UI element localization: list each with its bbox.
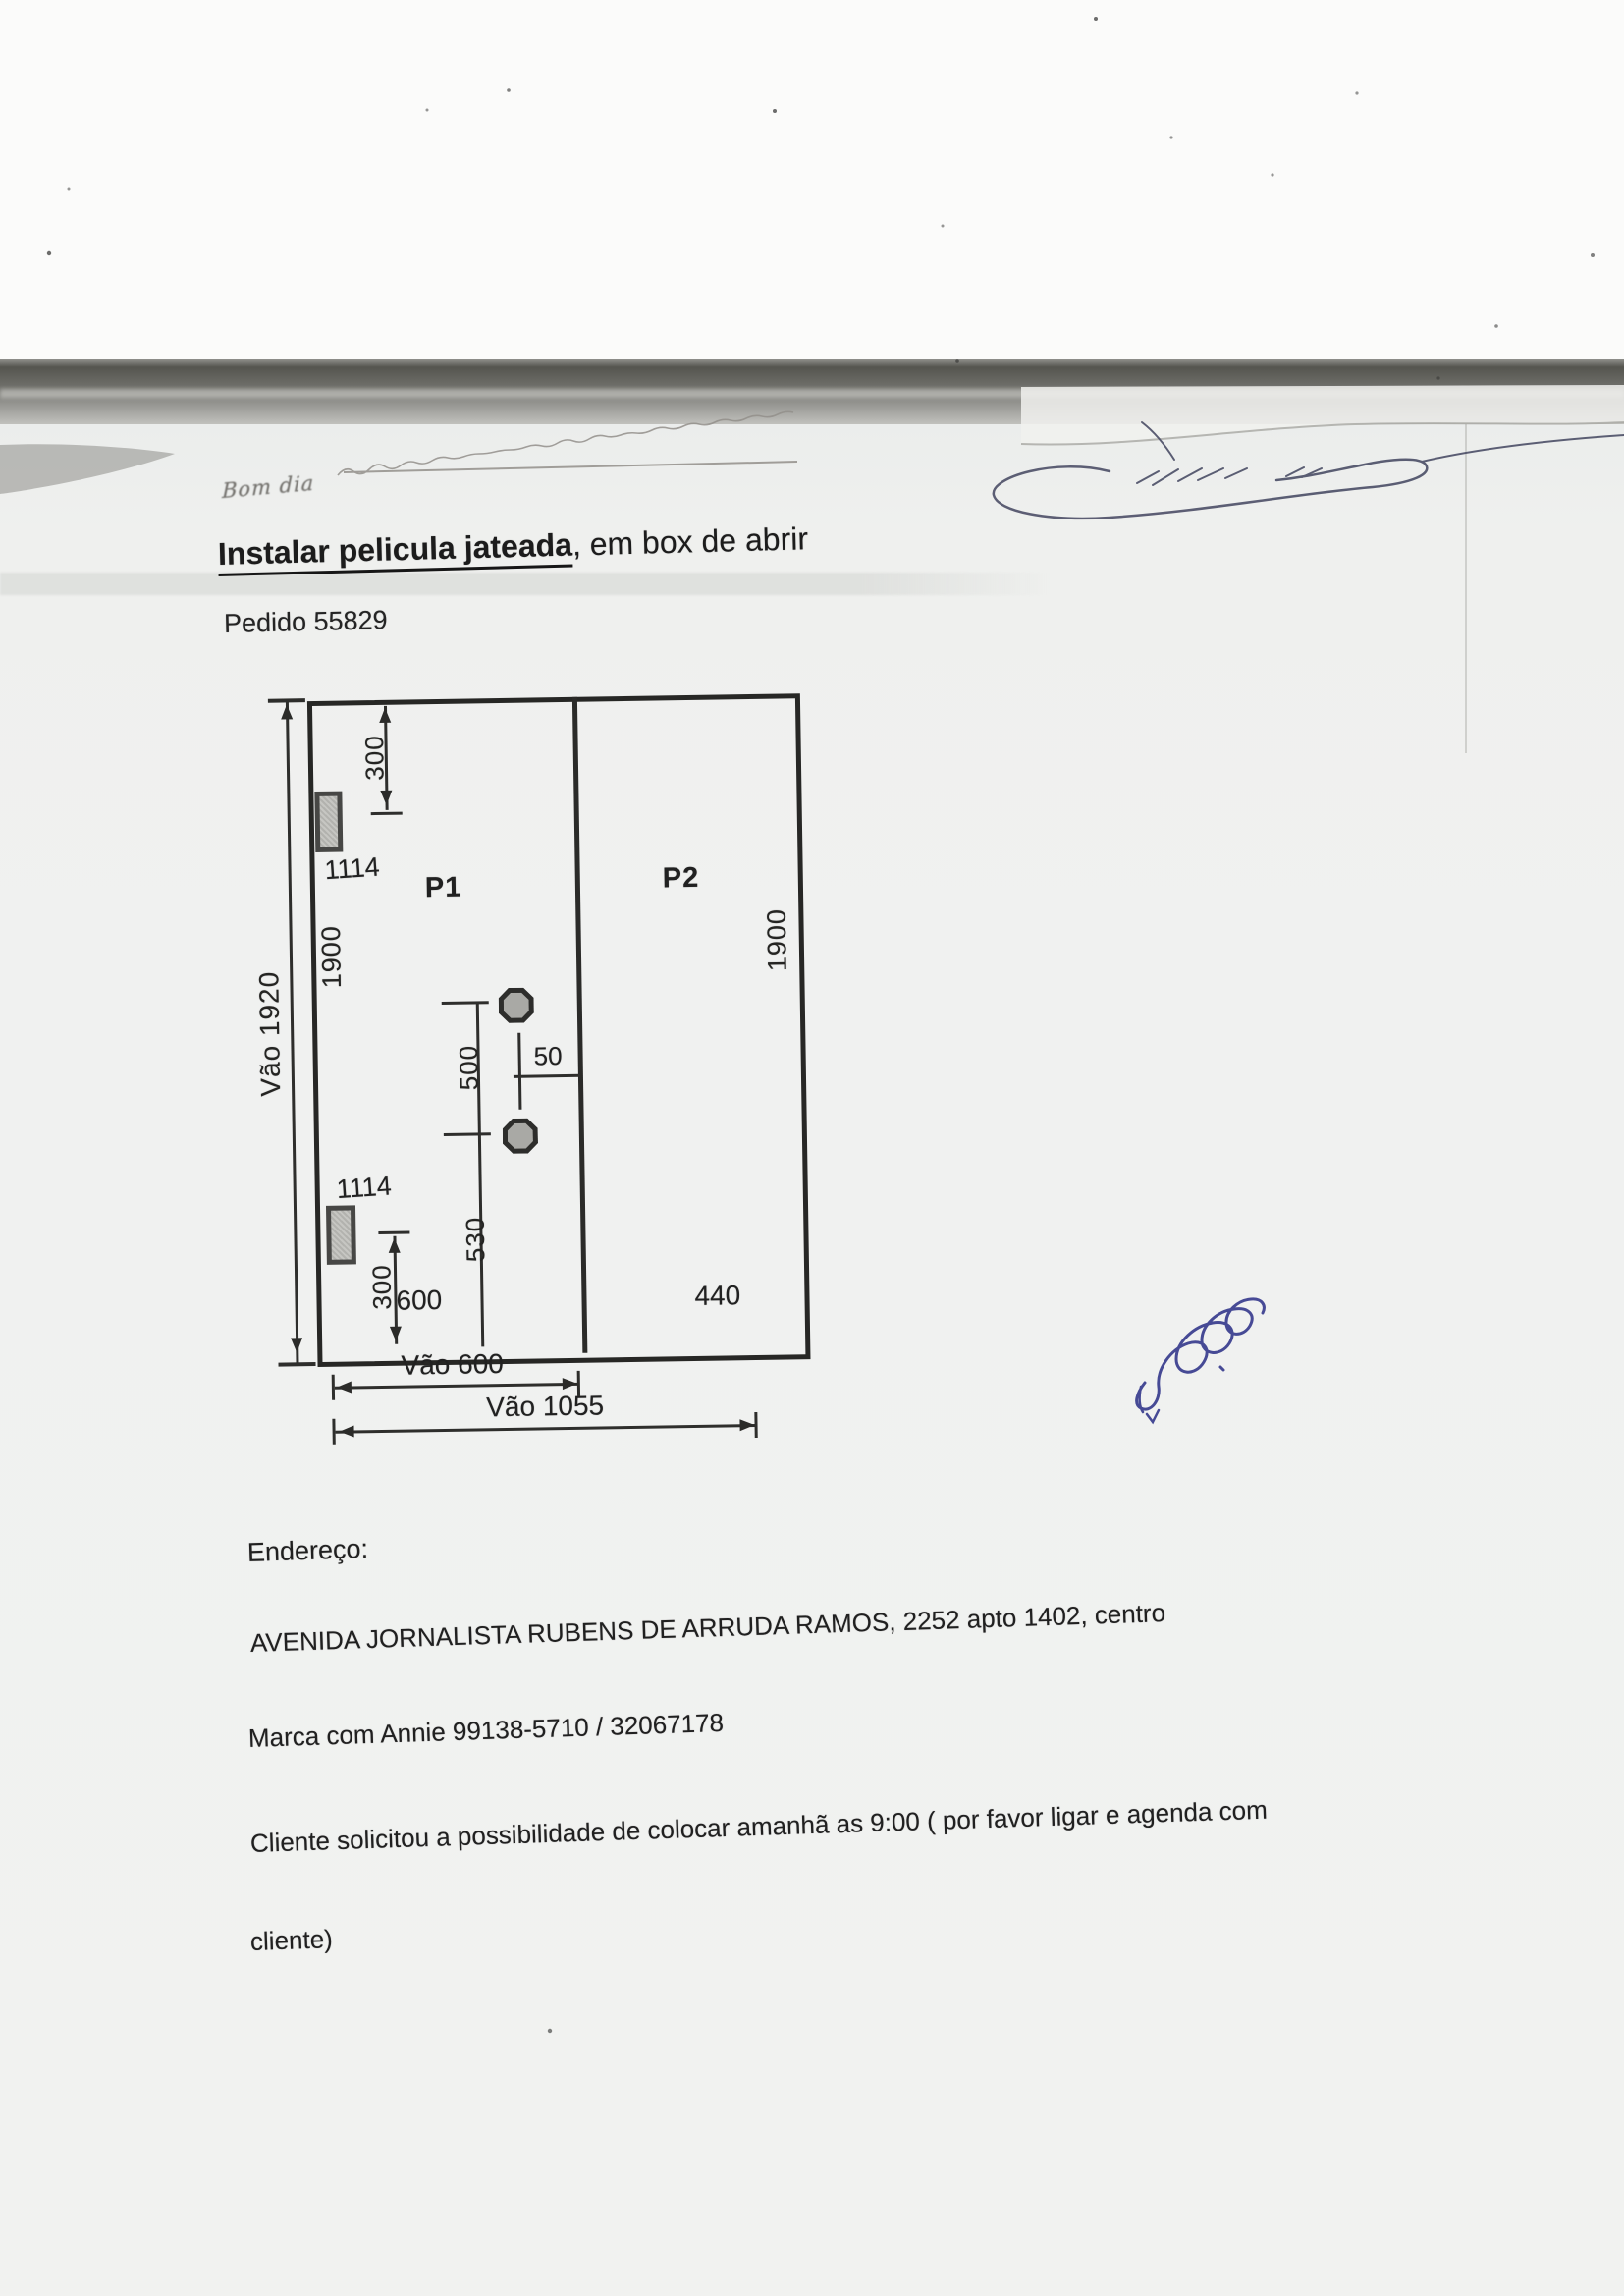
- dim-opening1-label: Vão 600: [401, 1348, 504, 1382]
- dim-knob-edge-label: 50: [533, 1041, 562, 1071]
- dim-knob-spacing-label: 500: [453, 999, 485, 1136]
- box-drawing: Vão 1920 1900 1900 300 1114 1114 P1 P2 5…: [236, 680, 856, 1475]
- dim-panel1-height-label: 1900: [315, 888, 348, 1025]
- dim-tick: [332, 1419, 335, 1445]
- hinge-top: [314, 792, 343, 852]
- scanned-work-order: Bom dia Instalar pelicula jateada, em bo…: [0, 0, 1624, 2296]
- panel1-label: P1: [425, 872, 462, 905]
- illegible-crossed-text: [338, 411, 797, 475]
- dim-tick: [278, 1362, 315, 1367]
- hinge-top-model: 1114: [324, 852, 381, 887]
- arrow-up-icon: [281, 704, 293, 719]
- hinge-bottom-model: 1114: [336, 1171, 393, 1205]
- arrow-down-icon: [291, 1338, 302, 1352]
- dim-hinge-bottom-label: 300: [366, 1218, 399, 1355]
- dim-opening-total-label: Vão 1055: [486, 1390, 604, 1423]
- dim-panel1-width-label: 600: [396, 1285, 442, 1317]
- arrow-right-icon: [739, 1419, 754, 1431]
- dim-opening-total-line: [336, 1424, 756, 1434]
- hinge-bottom: [326, 1205, 356, 1264]
- dim-overall-height-line: [286, 701, 299, 1365]
- dim-knob-bottom-label: 530: [460, 1171, 492, 1308]
- panel2-label: P2: [663, 862, 700, 896]
- dim-opening1-line: [335, 1383, 578, 1390]
- arrow-right-icon: [563, 1378, 577, 1390]
- dim-tick: [754, 1412, 757, 1438]
- note-line-2: cliente): [249, 1924, 333, 1957]
- address-label: Endereço:: [246, 1534, 368, 1568]
- dim-panel2-height-label: 1900: [761, 871, 793, 1009]
- dim-panel2-width-label: 440: [694, 1280, 740, 1312]
- dim-overall-height-label: Vão 1920: [253, 965, 287, 1103]
- dim-tick: [332, 1375, 335, 1400]
- arrow-left-icon: [337, 1381, 352, 1393]
- arrow-left-icon: [339, 1425, 353, 1437]
- dim-tick: [268, 698, 305, 703]
- pen-scribble-blue: [1137, 1299, 1265, 1422]
- order-number: Pedido 55829: [224, 605, 388, 639]
- title-rest: , em box de abrir: [571, 520, 808, 562]
- dim-hinge-top-label: 300: [358, 688, 391, 826]
- page-curl-wedge: [0, 444, 175, 494]
